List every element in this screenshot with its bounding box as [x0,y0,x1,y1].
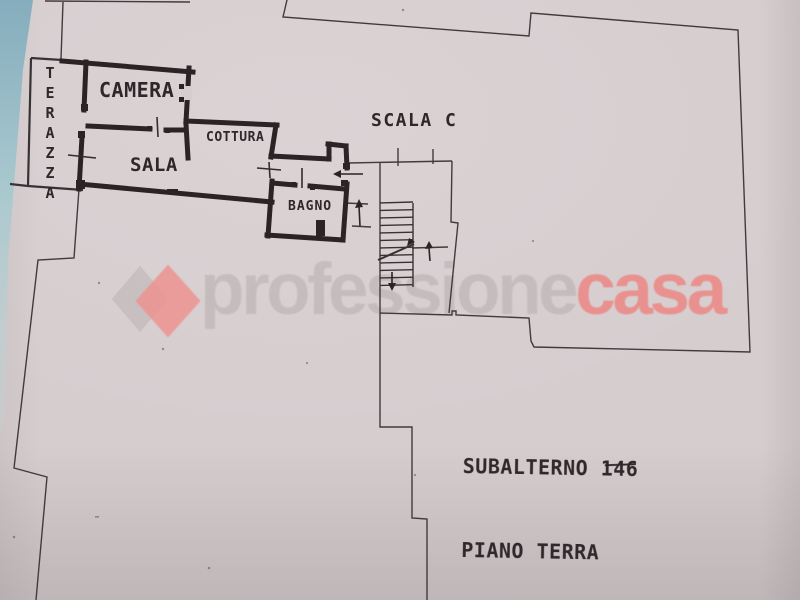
bath-pillar [316,220,325,236]
info-floor: PIANO TERRA [461,536,637,567]
stairwell-label: SCALA C [371,110,457,131]
room-label-bedroom: CAMERA [99,78,174,102]
room-label-bath: BAGNO [288,199,332,214]
room-label-kitchen: COTTURA [206,130,264,145]
dust-specks [13,9,534,570]
info-subalterno: SUBALTERNO 146 [463,452,639,483]
scanned-floor-plan-photo: professionecasa [0,0,800,600]
wall-notch [179,84,192,102]
room-label-terrace: TERAZZA [41,64,59,204]
room-label-living: SALA [130,154,178,176]
scan-edge [0,0,33,432]
stair-break-line [378,244,414,260]
cadastral-info-block: SUBALTERNO 146 PIANO TERRA H = 2,70 M SC… [457,396,639,600]
